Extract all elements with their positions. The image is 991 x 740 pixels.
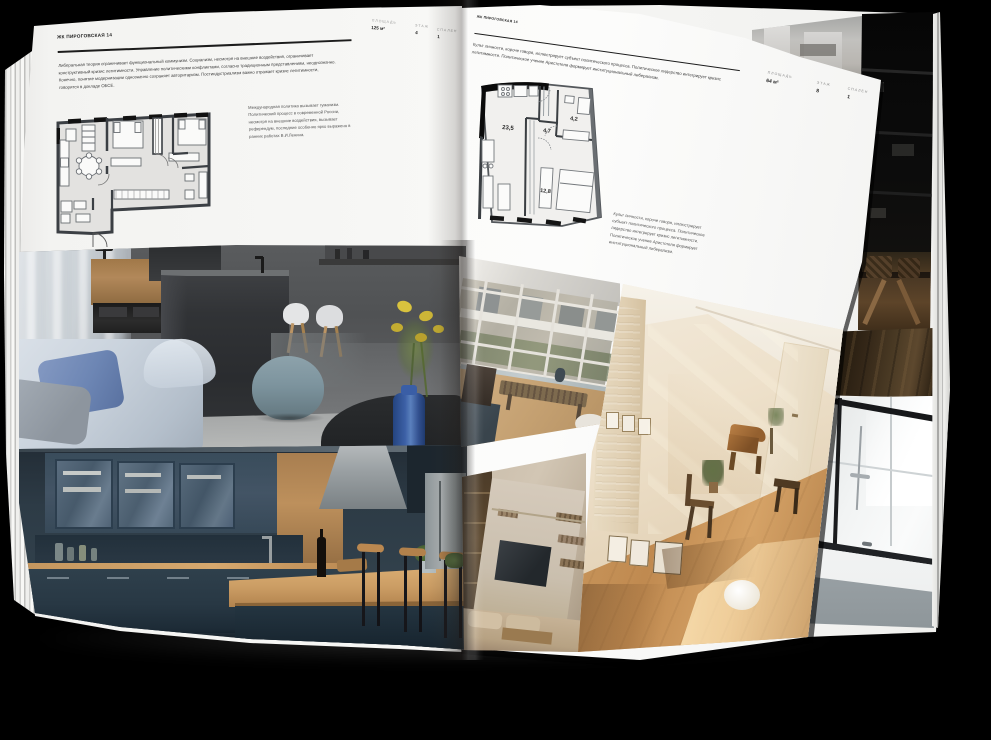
svg-text:12,8: 12,8 [540,188,551,195]
svg-text:23,5: 23,5 [502,125,515,132]
svg-text:4,7: 4,7 [543,128,551,135]
svg-text:4,2: 4,2 [570,116,578,123]
